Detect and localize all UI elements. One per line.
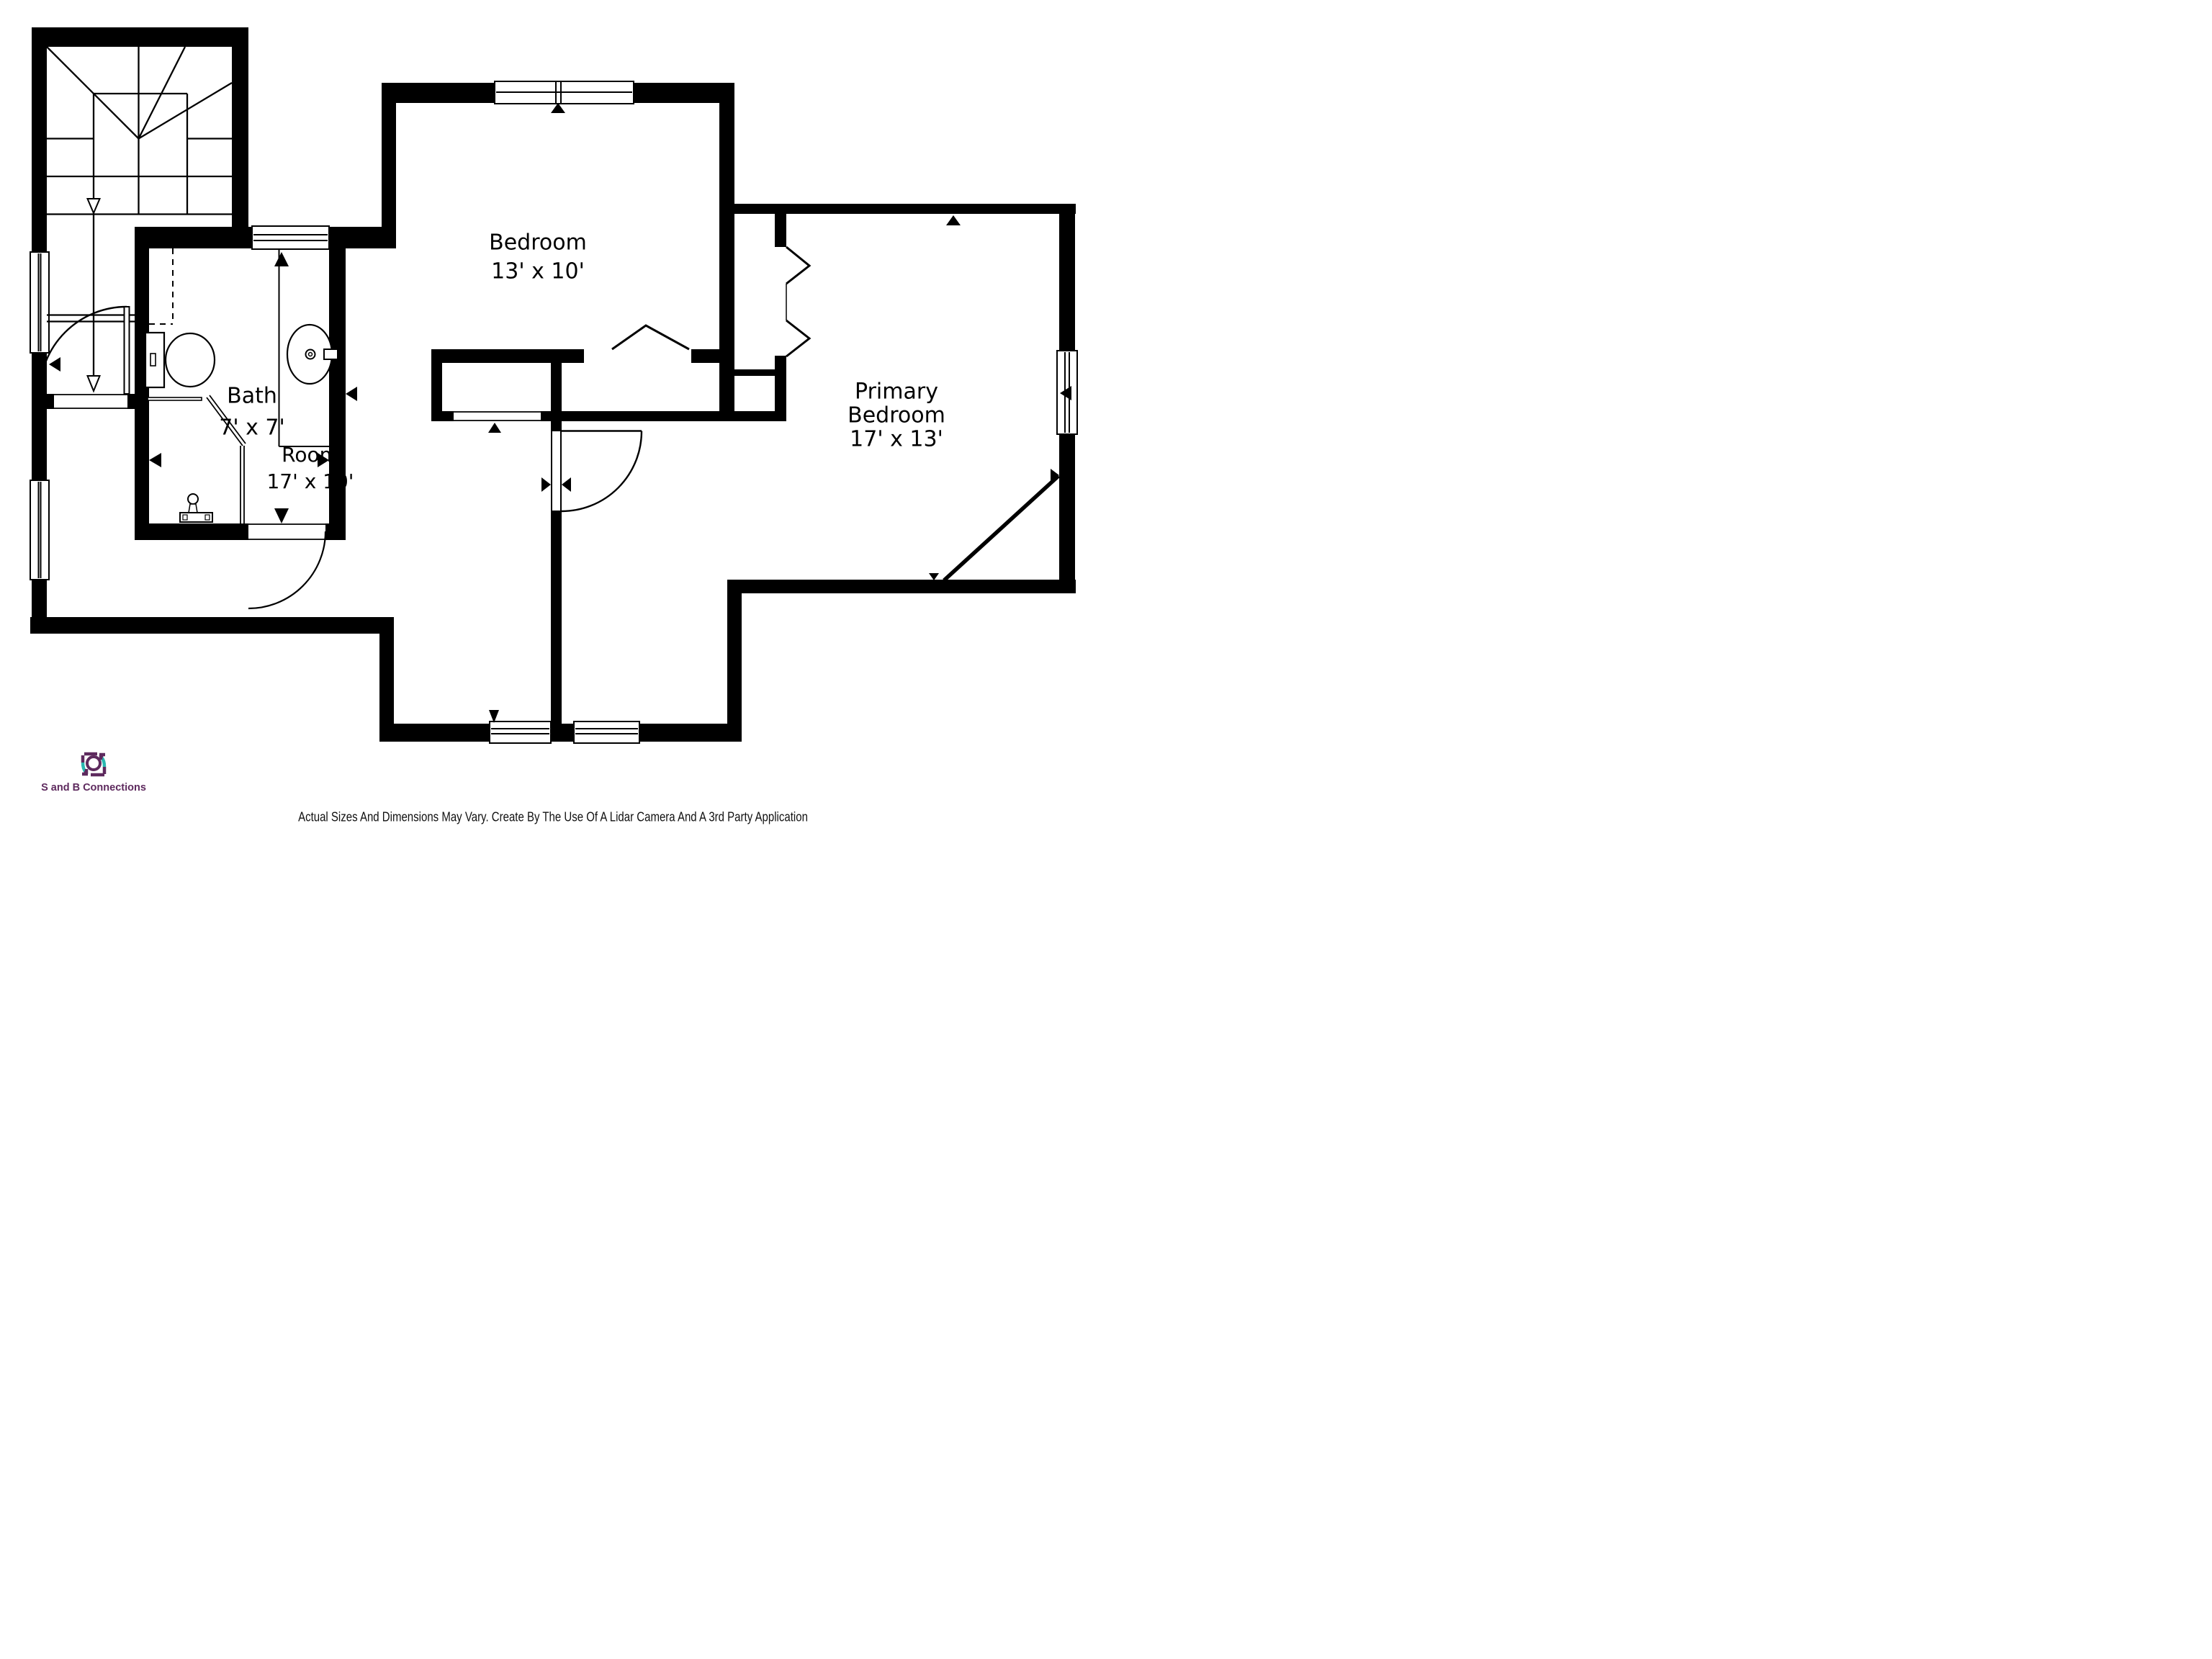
shower-dashed-outline (149, 248, 173, 324)
logo: S and B Connections (22, 750, 166, 793)
window-bath-top (252, 226, 329, 249)
room-label-room: Room 17' x 10' (266, 442, 354, 495)
door-storage-room (552, 431, 642, 511)
window-left-lower (30, 480, 49, 580)
closet-chevrons (612, 247, 809, 356)
door-stair-hall (40, 307, 130, 394)
marker-left-window (49, 357, 60, 372)
primary-closet-chevron-lower (786, 320, 809, 356)
marker-passage (346, 387, 357, 401)
window-bottom-right (574, 721, 639, 743)
stair-down-arrow-upper (88, 199, 100, 213)
marker-closet-opening (488, 423, 501, 433)
marker-primary-top (946, 215, 961, 225)
marker-bath-north (274, 252, 289, 266)
sink-icon (279, 248, 338, 446)
room-name: Bedroom (489, 230, 587, 255)
room-name: Room (282, 443, 339, 467)
marker-bath-south (274, 508, 289, 523)
room-dims: 17' x 10' (266, 469, 354, 495)
floor-plan-page: Bedroom 13' x 10' Bath 7' x 7' Room 17' … (0, 0, 1106, 829)
bedroom-closet-chevron (612, 325, 689, 349)
window-bottom-left (490, 721, 551, 743)
room-label-bedroom: Bedroom 13' x 10' (489, 228, 587, 285)
room-dims: 13' x 10' (489, 257, 587, 286)
disclaimer-text: Actual Sizes And Dimensions May Vary. Cr… (0, 809, 1106, 824)
door-bath-to-room (248, 531, 325, 608)
logo-text: S and B Connections (22, 782, 166, 793)
marker-bedroom-window (551, 103, 565, 113)
room-name: Bath (227, 384, 277, 409)
sloped-ceiling-line (944, 476, 1058, 580)
room-dims: 7' x 7' (219, 412, 285, 444)
room-label-bath: Bath 7' x 7' (219, 381, 285, 444)
marker-diagonal-start (929, 573, 939, 580)
marker-door-left (541, 477, 551, 492)
room-name: Primary Bedroom (848, 379, 945, 428)
window-left-upper (30, 252, 49, 353)
room-dims: 17' x 13' (832, 428, 961, 451)
marker-bath-west (149, 453, 161, 467)
tub-faucet-icon (180, 494, 212, 522)
logo-camera-icon (76, 750, 112, 779)
window-bedroom-top (495, 81, 634, 104)
stair-down-arrow-lower (88, 376, 100, 391)
toilet-icon (145, 333, 215, 387)
room-label-primary-bedroom: Primary Bedroom 17' x 13' (832, 380, 961, 451)
primary-closet-chevron-upper (786, 247, 809, 284)
marker-door-right (562, 477, 571, 492)
